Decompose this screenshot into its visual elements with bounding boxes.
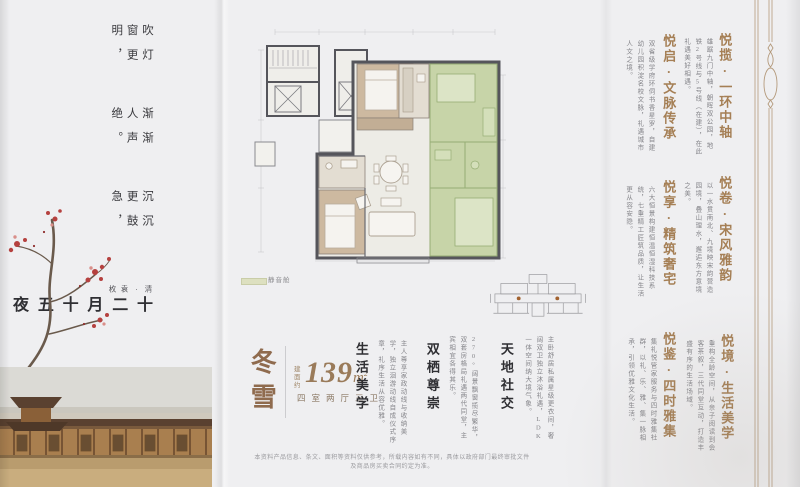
area-value: 139 <box>305 356 353 389</box>
section-text: 以一水贯南北、九境映宋韵营造园境，叠山理水，邂逅东方意境之美。 <box>686 182 714 294</box>
page-edge-shadow <box>0 0 10 487</box>
feature-title-life-aesthetics: 生活美学 <box>352 342 369 432</box>
unit-location-dot <box>555 296 559 300</box>
feature-text: 主卧舒居私属星级更衣间，奢阔双卫独立沐浴礼遇，LDK一体空间纳大境气象。 <box>517 336 555 444</box>
section-text: 六大恒景构建恒温恒湿科技系统，七重精工匠筑品质，让生活更从容安隐。 <box>624 186 656 298</box>
unit-name: 冬雪 <box>246 348 277 418</box>
floor-plan <box>253 20 508 265</box>
area-prefix: 建面约 <box>294 366 303 390</box>
gourd-ornament <box>764 44 777 108</box>
poem-line: 吹灯窗更明， <box>46 0 154 73</box>
legend-label: 静音舱 <box>268 274 291 284</box>
disclaimer: 本资料产品信息、条文、面积等资料仅供参考，所载内容如有不同，具体以政府部门最终审… <box>252 452 532 470</box>
feature-text: 主人尊享家政动线与收纳美学，独立洄游动线自成仪式序章，礼序生活从容优雅。 <box>372 340 408 448</box>
section-title-jingzhu: 悦享·精筑奢宅 <box>660 180 676 305</box>
unit-layout: 四室两厅三卫 <box>297 392 384 404</box>
feature-title-social: 天地社交 <box>497 342 514 432</box>
section-text: 双省级学府环伺书香星罗，自建幼儿园积淀名校文脉，礼遇城市人文之境。 <box>624 40 656 158</box>
landscape-watermark <box>560 290 800 487</box>
feature-text: 270°阔景飘窗揽尽繁华，双套房格局礼遇两代同堂，主宾相宜各得其乐。 <box>443 336 479 444</box>
legend-swatch <box>241 278 267 285</box>
section-title-songfeng: 悦卷·宋风雅韵 <box>716 176 732 301</box>
section-title-zhongzhou: 悦揽·一环中轴 <box>716 33 732 158</box>
section-title-wenmai: 悦启·文脉传承 <box>660 34 676 159</box>
page-edge-shadow <box>786 0 800 487</box>
feature-title-dual-suite: 双栖尊崇 <box>423 342 440 432</box>
service-core <box>255 46 367 166</box>
brochure-page: 十二月十五夜 清·袁枚 沉沉更鼓急， 渐渐人声绝。 吹灯窗更明， 月照一天雪。 <box>0 0 800 487</box>
fold-crease <box>214 0 230 487</box>
divider <box>285 346 286 418</box>
fold-crease <box>600 0 612 487</box>
courtyard-photo <box>0 367 212 487</box>
section-text: 雄踞九门中轴，朝晖双公园，地铁2号线与5号线（在建），在此礼遇美好相遇。 <box>686 38 714 156</box>
poem-line: 渐渐人声绝。 <box>46 73 154 156</box>
unit-location-dot <box>517 296 521 300</box>
